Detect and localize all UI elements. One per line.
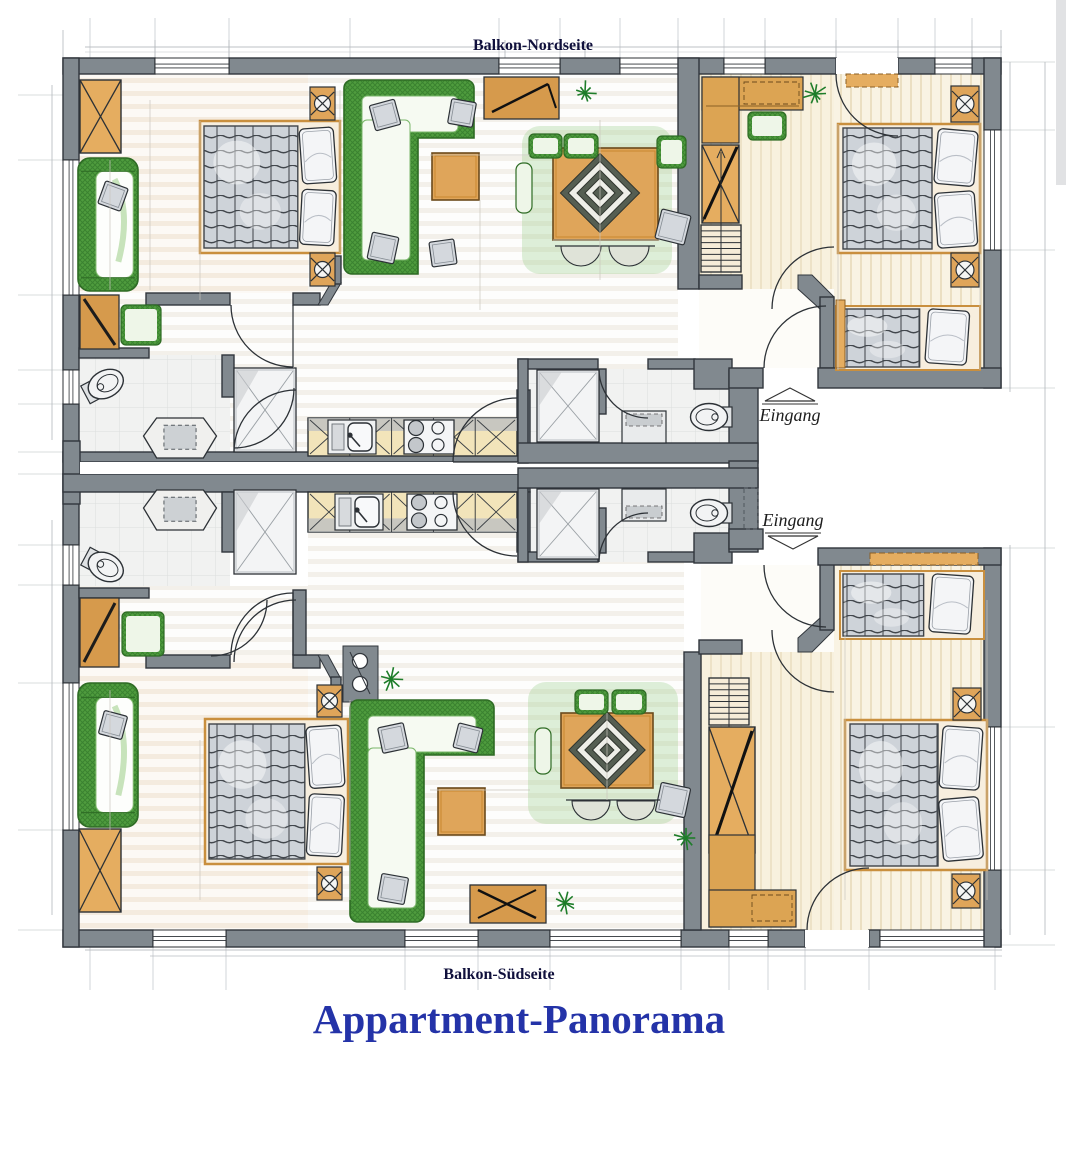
svg-text:Balkon-Nordseite: Balkon-Nordseite: [473, 37, 593, 54]
svg-text:Appartment-Panorama: Appartment-Panorama: [313, 996, 725, 1042]
svg-text:Balkon-Südseite: Balkon-Südseite: [443, 966, 554, 983]
svg-text:Eingang: Eingang: [762, 510, 824, 530]
svg-text:Eingang: Eingang: [759, 405, 821, 425]
